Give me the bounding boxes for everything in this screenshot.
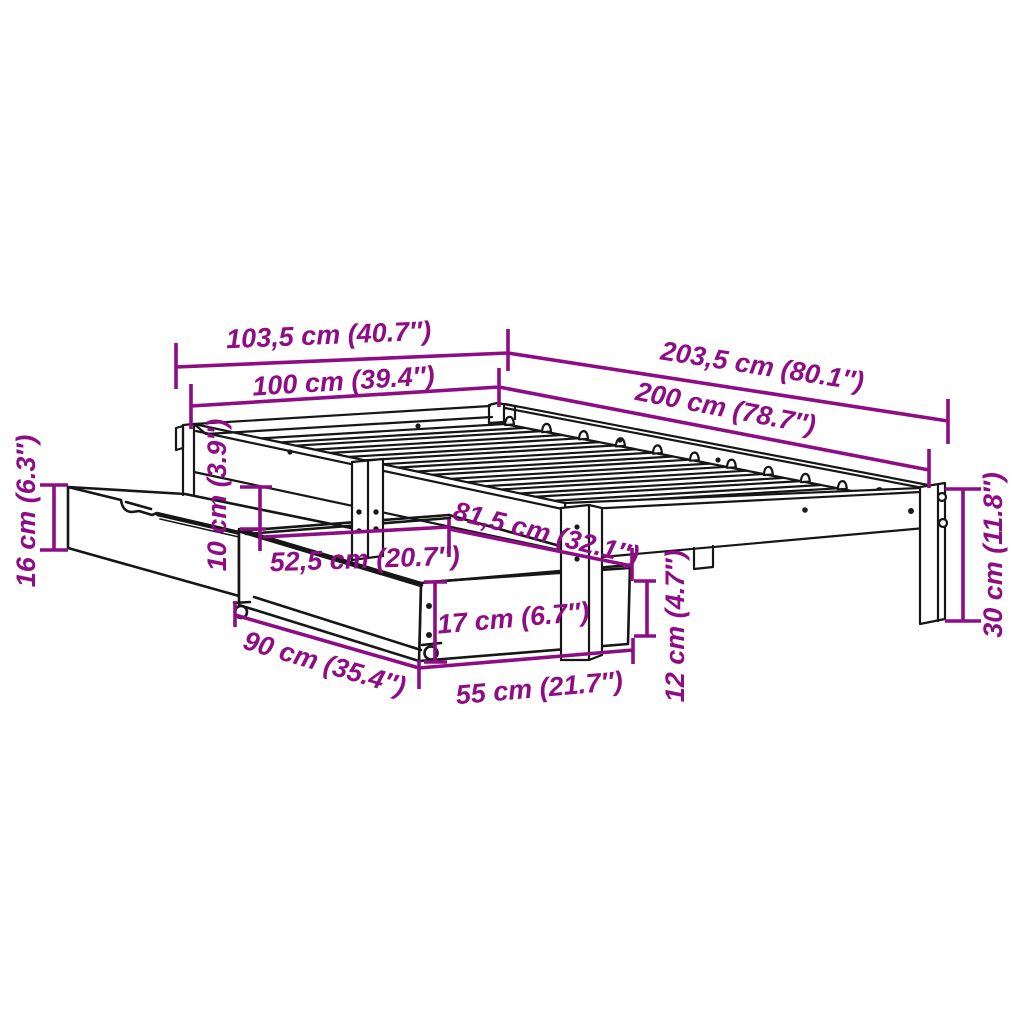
svg-text:12 cm (4.7″): 12 cm (4.7″)	[660, 550, 690, 703]
svg-text:103,5 cm (40.7″): 103,5 cm (40.7″)	[226, 316, 432, 355]
svg-text:30 cm (11.8″): 30 cm (11.8″)	[978, 472, 1008, 638]
svg-text:52,5 cm (20.7″): 52,5 cm (20.7″)	[269, 541, 460, 578]
svg-text:55 cm (21.7″): 55 cm (21.7″)	[454, 666, 624, 710]
svg-text:16 cm (6.3″): 16 cm (6.3″)	[11, 435, 41, 588]
svg-text:100 cm (39.4″): 100 cm (39.4″)	[251, 360, 435, 401]
svg-text:10 cm (3.9″): 10 cm (3.9″)	[202, 419, 232, 572]
